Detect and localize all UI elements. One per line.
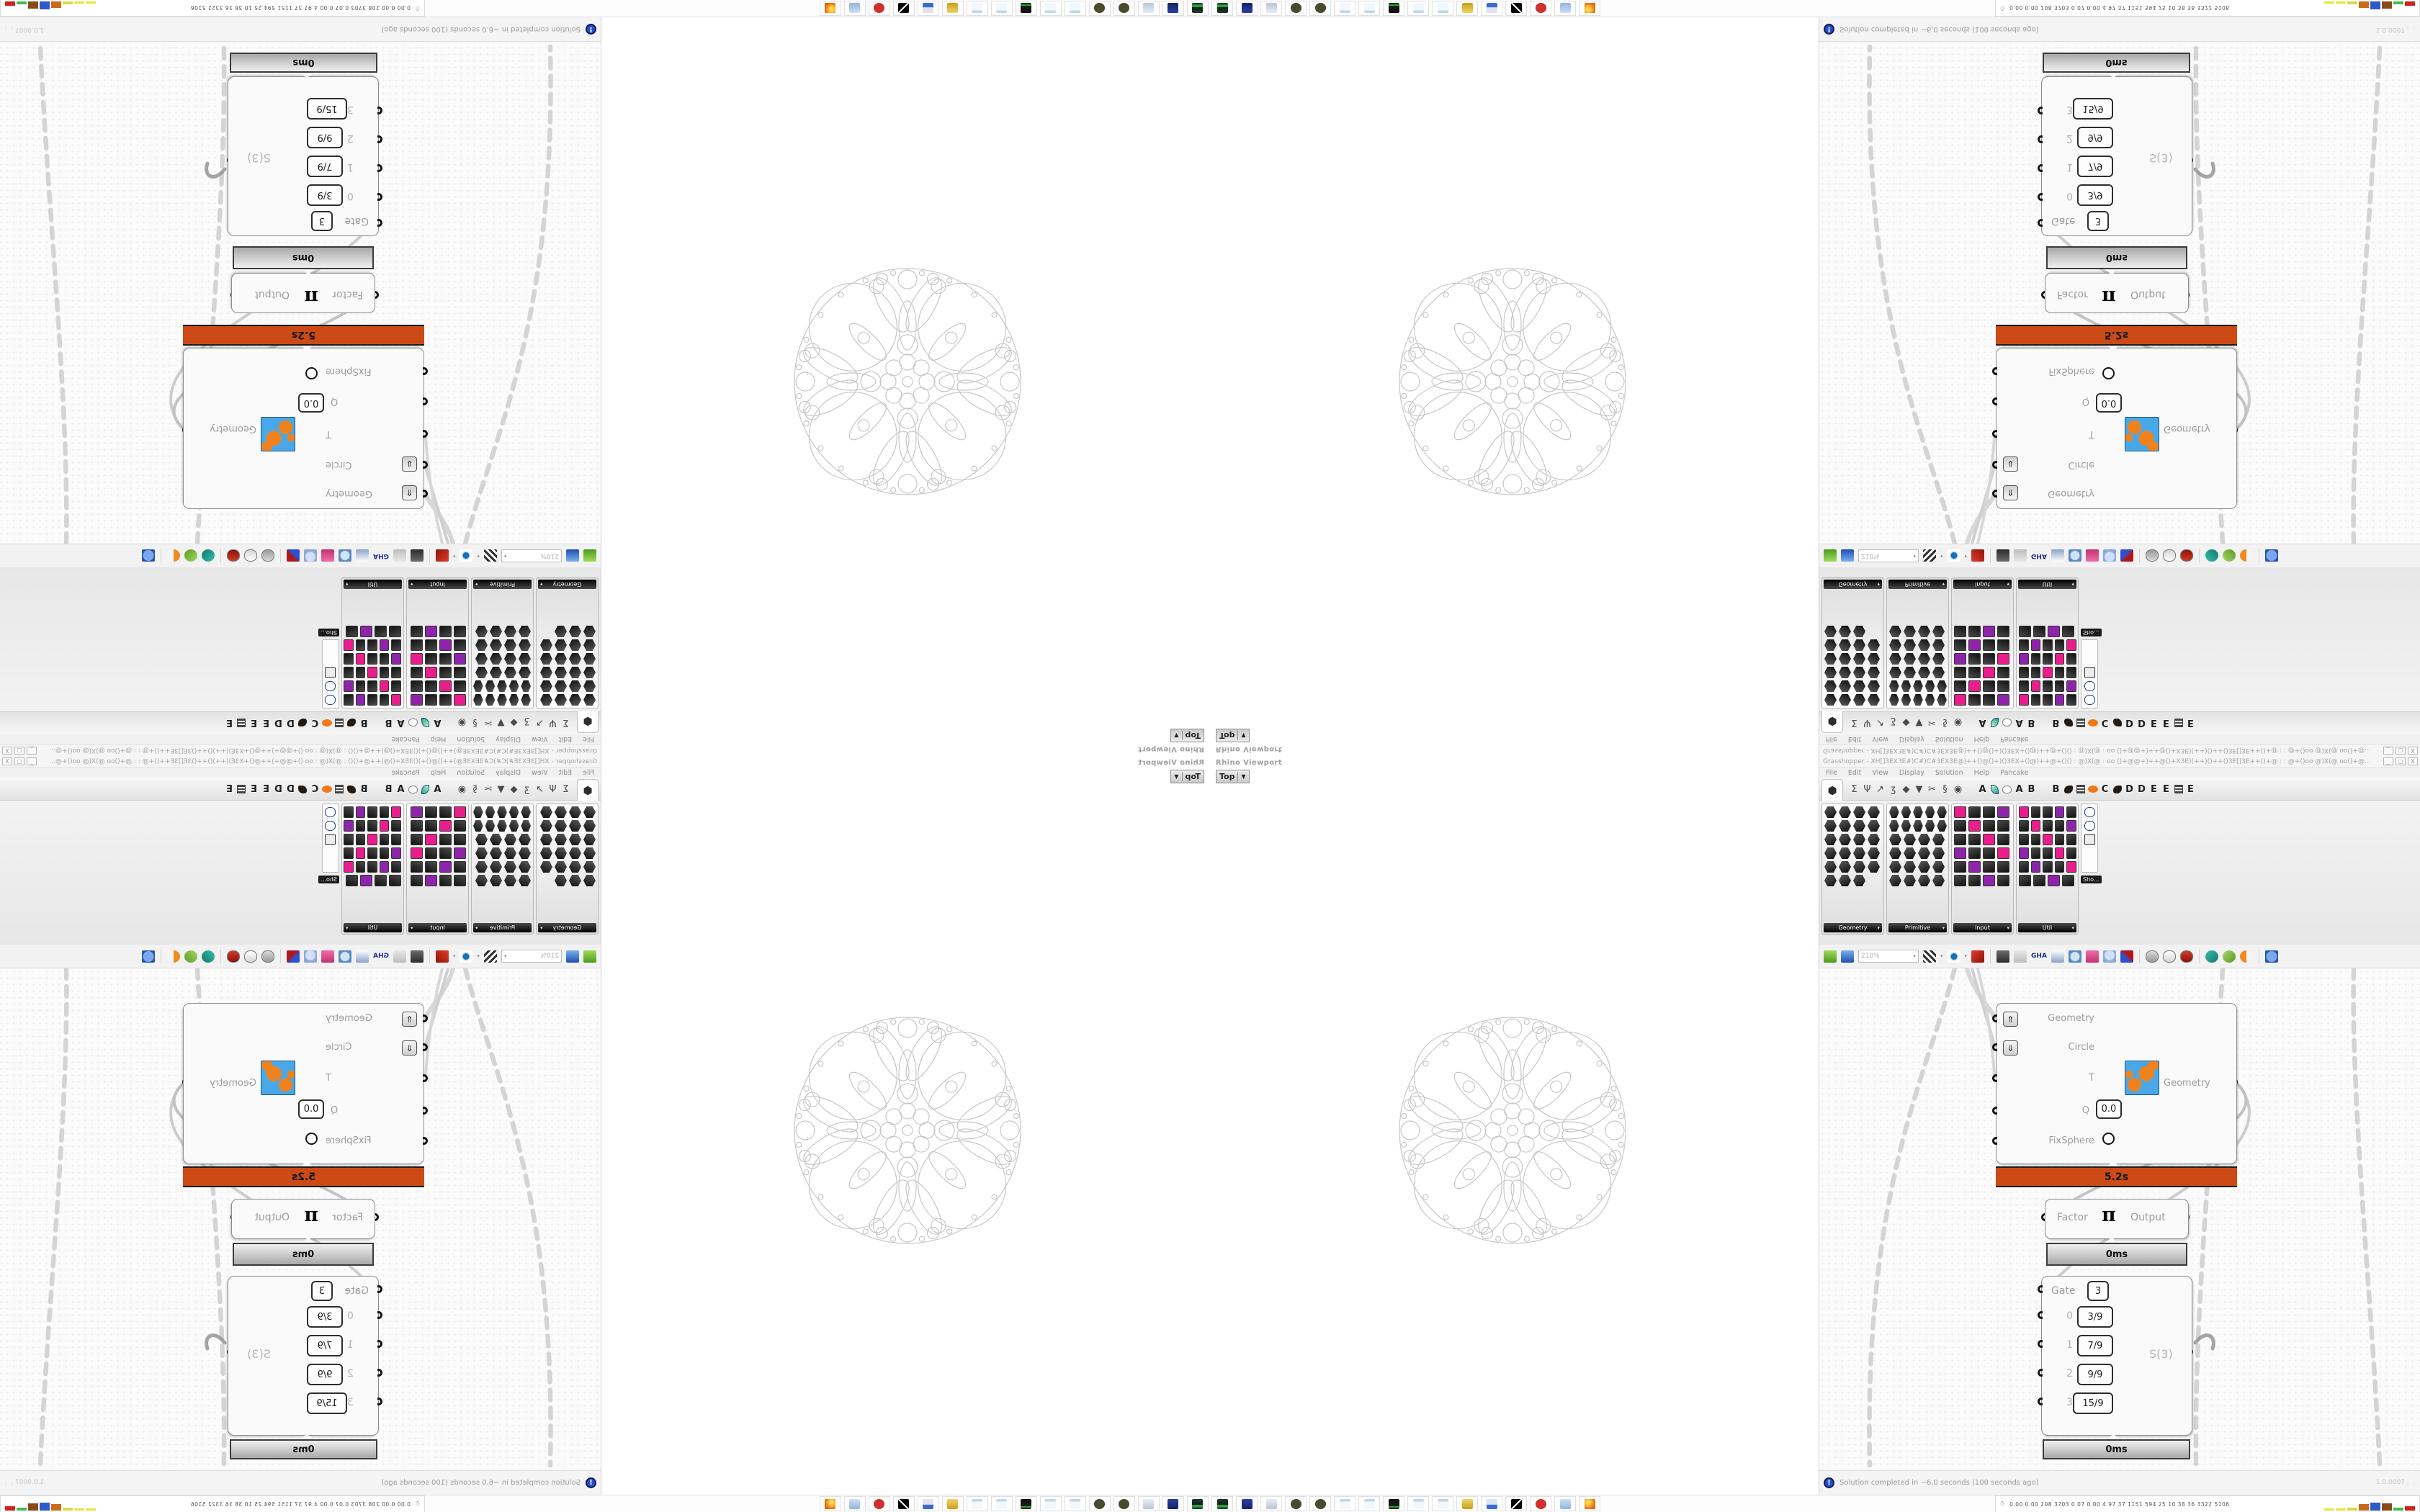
- tab-mountain-icon[interactable]: [2038, 778, 2050, 801]
- component-icon[interactable]: [411, 820, 423, 832]
- wire-display-icon[interactable]: [2120, 950, 2133, 963]
- component-icon[interactable]: [1853, 639, 1865, 651]
- search-s-icon[interactable]: [2069, 950, 2081, 963]
- tab-sets-branch[interactable]: Ψ: [547, 778, 559, 801]
- tab-transform-spiral[interactable]: §: [469, 711, 481, 734]
- menu-item-edit[interactable]: Edit: [559, 769, 572, 777]
- palette-footer-input[interactable]: Input▾: [1953, 580, 2012, 589]
- component-icon[interactable]: [1983, 806, 1995, 818]
- preview-eye-icon[interactable]: [1948, 950, 1960, 963]
- tab-vector-stroke[interactable]: ↗: [1874, 778, 1886, 801]
- tab-ellipse-icon[interactable]: [321, 778, 333, 801]
- component-icon[interactable]: [1954, 694, 1966, 706]
- component-icon[interactable]: [2031, 861, 2041, 873]
- tab-curve-hook[interactable]: ʒ: [521, 778, 533, 801]
- chevron-down-icon[interactable]: ▼: [1174, 732, 1178, 739]
- component-icon[interactable]: [1932, 639, 1945, 651]
- menu-item-help[interactable]: Help: [1974, 769, 1990, 777]
- component-icon[interactable]: [1954, 680, 1966, 692]
- component-icon[interactable]: [1932, 653, 1945, 665]
- component-icon[interactable]: [367, 667, 377, 678]
- tab-letter-E[interactable]: E: [260, 711, 272, 734]
- maximize-button[interactable]: □: [14, 757, 24, 765]
- tab-letter-A[interactable]: A: [431, 778, 444, 801]
- component-icon[interactable]: [411, 847, 423, 859]
- select-teal-icon[interactable]: [2205, 550, 2218, 562]
- component-icon[interactable]: [1997, 653, 2009, 665]
- blue-octagon-icon[interactable]: [142, 550, 155, 562]
- component-icon[interactable]: [569, 875, 581, 886]
- palette-footer-util[interactable]: Util▾: [344, 580, 402, 589]
- menu-item-help[interactable]: Help: [431, 736, 447, 744]
- component-icon[interactable]: [425, 834, 437, 845]
- component-icon[interactable]: [1824, 875, 1837, 886]
- tab-maths-sigma[interactable]: Σ: [1848, 711, 1860, 734]
- open-button-icon[interactable]: [1824, 950, 1837, 963]
- component-icon[interactable]: [519, 653, 531, 665]
- tab-letter-C[interactable]: C: [2099, 778, 2111, 801]
- component-icon[interactable]: [490, 834, 502, 845]
- tab-maths-sigma[interactable]: Σ: [560, 711, 572, 734]
- component-icon[interactable]: [583, 667, 596, 678]
- component-icon[interactable]: [1853, 834, 1865, 845]
- component-icon[interactable]: [356, 639, 366, 651]
- tab-transform-spiral[interactable]: §: [1939, 711, 1951, 734]
- component-icon[interactable]: [2055, 820, 2065, 832]
- taskbar-item-lightning[interactable]: [893, 1, 915, 16]
- component-icon[interactable]: [1889, 680, 1899, 692]
- chevron-down-icon[interactable]: ▾: [2007, 925, 2009, 931]
- component-icon[interactable]: [485, 694, 496, 706]
- taskbar-item-workstation[interactable]: [918, 1496, 939, 1511]
- taskbar-item-dark-ornament[interactable]: [1113, 1496, 1135, 1511]
- component-icon[interactable]: [1839, 847, 1851, 859]
- tab-cloud-icon[interactable]: [407, 778, 419, 801]
- component-icon[interactable]: [1968, 861, 1981, 873]
- remote-panel-icon[interactable]: [1996, 950, 2009, 963]
- tab-bird-icon[interactable]: [2111, 711, 2123, 734]
- tab-bird-icon[interactable]: [2111, 778, 2123, 801]
- tab-letter-E[interactable]: E: [260, 778, 272, 801]
- tab-letter-A[interactable]: A: [1976, 711, 1989, 734]
- palette-footer-primitive[interactable]: Primitive▾: [1888, 923, 1947, 932]
- tab-intersect-scissors[interactable]: ✂: [482, 711, 494, 734]
- component-icon[interactable]: [540, 667, 552, 678]
- zoom-extents-icon[interactable]: [484, 950, 497, 963]
- output-grip[interactable]: [2237, 423, 2242, 434]
- tab-intersect-scissors[interactable]: ✂: [482, 778, 494, 801]
- component-icon[interactable]: [569, 834, 581, 845]
- tab-transform-spiral[interactable]: §: [469, 778, 481, 801]
- component-icon[interactable]: [326, 807, 336, 817]
- window-panel-icon[interactable]: [356, 550, 369, 562]
- component-icon[interactable]: [380, 639, 390, 651]
- component-icon[interactable]: [367, 639, 377, 651]
- remote-panel-icon[interactable]: [1996, 550, 2009, 562]
- q-value-box[interactable]: 0.0: [2096, 1099, 2122, 1119]
- input-grip[interactable]: [377, 216, 382, 227]
- bulb-icon[interactable]: [304, 550, 317, 562]
- component-icon[interactable]: [2066, 834, 2076, 845]
- component-icon[interactable]: [1954, 667, 1966, 678]
- component-icon[interactable]: [326, 821, 336, 831]
- sketch-pen-icon[interactable]: [1971, 950, 1984, 963]
- tab-bird-icon[interactable]: [346, 711, 358, 734]
- component-icon[interactable]: [1839, 626, 1851, 637]
- component-icon[interactable]: [2043, 820, 2053, 832]
- component-icon[interactable]: [540, 694, 552, 706]
- component-icon[interactable]: [389, 875, 401, 886]
- chevron-down-icon[interactable]: ▾: [1965, 953, 1968, 959]
- component-icon[interactable]: [1937, 680, 1947, 692]
- component-icon[interactable]: [2031, 680, 2041, 692]
- component-icon[interactable]: [2043, 806, 2053, 818]
- blue-octagon-icon[interactable]: [2265, 950, 2278, 963]
- component-icon[interactable]: [1968, 834, 1981, 845]
- taskbar-item-notepad[interactable]: [1432, 1496, 1453, 1511]
- tab-letter-E[interactable]: E: [248, 778, 260, 801]
- component-icon[interactable]: [1983, 653, 1995, 665]
- output-grip[interactable]: [2192, 153, 2197, 164]
- component-icon[interactable]: [475, 639, 488, 651]
- at-panel-icon[interactable]: [393, 950, 406, 963]
- tab-letter-B[interactable]: B: [382, 778, 395, 801]
- preview-wireframe-icon[interactable]: [244, 550, 257, 562]
- tab-letter-E[interactable]: E: [248, 711, 260, 734]
- component-icon[interactable]: [475, 667, 488, 678]
- tab-mountain-icon[interactable]: [2038, 711, 2050, 734]
- chevron-down-icon[interactable]: ▾: [2071, 582, 2074, 588]
- gha-installer-icon[interactable]: GHA: [2031, 552, 2047, 559]
- gate-value-box[interactable]: 3: [311, 1281, 333, 1301]
- component-icon[interactable]: [367, 680, 377, 692]
- select-green-icon[interactable]: [184, 950, 197, 963]
- component-icon[interactable]: [1997, 820, 2009, 832]
- menu-item-help[interactable]: Help: [431, 769, 447, 777]
- q-value-box[interactable]: 0.0: [2096, 393, 2122, 413]
- component-icon[interactable]: [2055, 680, 2065, 692]
- component-icon[interactable]: [391, 861, 401, 873]
- component-icon[interactable]: [2084, 681, 2095, 691]
- component-icon[interactable]: [1925, 806, 1935, 818]
- chevron-down-icon[interactable]: ▾: [475, 925, 478, 931]
- component-icon[interactable]: [344, 667, 354, 678]
- taskbar-item-green-crt-device[interactable]: [1211, 1, 1233, 16]
- component-icon[interactable]: [1997, 680, 2009, 692]
- taskbar-item-workstation[interactable]: [918, 1, 939, 16]
- gh-canvas[interactable]: ⇑ ⇓ Geometry Circle T Q 0.0 FixSphere Ge…: [0, 42, 601, 544]
- component-icon[interactable]: [454, 834, 466, 845]
- output-grip[interactable]: [2189, 288, 2194, 299]
- wire-display-icon[interactable]: [287, 950, 300, 963]
- component-icon[interactable]: [2066, 861, 2076, 873]
- component-icon[interactable]: [540, 680, 552, 692]
- component-icon[interactable]: [1954, 847, 1966, 859]
- component-icon[interactable]: [439, 653, 452, 665]
- tab-bird-icon[interactable]: [2062, 711, 2074, 734]
- component-icon[interactable]: [380, 834, 390, 845]
- component-icon[interactable]: [2031, 694, 2041, 706]
- output-grip[interactable]: [178, 1078, 183, 1089]
- component-icon[interactable]: [1983, 667, 1995, 678]
- component-icon[interactable]: [1932, 626, 1945, 637]
- component-icon[interactable]: [490, 626, 502, 637]
- component-icon[interactable]: [2043, 667, 2053, 678]
- component-icon[interactable]: [1853, 875, 1865, 886]
- taskbar-item-dark-ornament[interactable]: [1113, 1, 1135, 16]
- component-icon[interactable]: [504, 847, 516, 859]
- package-box-icon[interactable]: [2086, 550, 2099, 562]
- menu-item-display[interactable]: Display: [1899, 769, 1924, 777]
- component-icon[interactable]: [475, 847, 488, 859]
- component-icon[interactable]: [1839, 680, 1851, 692]
- save-button-icon[interactable]: [1841, 950, 1854, 963]
- component-icon[interactable]: [391, 639, 401, 651]
- component-icon[interactable]: [454, 694, 466, 706]
- component-icon[interactable]: [1932, 667, 1945, 678]
- component-icon[interactable]: [569, 694, 581, 706]
- input-grip[interactable]: [2038, 216, 2043, 227]
- component-icon[interactable]: [391, 680, 401, 692]
- chevron-down-icon[interactable]: ▾: [1942, 925, 1945, 931]
- component-icon[interactable]: [439, 806, 452, 818]
- taskbar-item-notepad[interactable]: [1407, 1, 1429, 16]
- tab-letter-A[interactable]: A: [2013, 711, 2025, 734]
- tab-grid-icon[interactable]: [236, 778, 248, 801]
- tab-letter-E[interactable]: E: [2148, 778, 2160, 801]
- component-icon[interactable]: [326, 681, 336, 691]
- tab-surface-patch[interactable]: ◆: [1900, 711, 1912, 734]
- component-icon[interactable]: [509, 806, 519, 818]
- component-icon[interactable]: [1889, 639, 1901, 651]
- component-icon[interactable]: [1868, 639, 1880, 651]
- component-icon[interactable]: [425, 694, 437, 706]
- component-icon[interactable]: [344, 806, 354, 818]
- component-icon[interactable]: [555, 694, 567, 706]
- tab-cloud-icon[interactable]: [2001, 711, 2013, 734]
- component-icon[interactable]: [1868, 806, 1880, 818]
- component-icon[interactable]: [1853, 694, 1865, 706]
- minimize-button[interactable]: _: [27, 747, 37, 755]
- tab-letter-D[interactable]: D: [284, 711, 297, 734]
- component-icon[interactable]: [583, 639, 596, 651]
- component-icon[interactable]: [540, 847, 552, 859]
- tab-leaf-icon[interactable]: [419, 711, 431, 734]
- component-icon[interactable]: [1904, 653, 1916, 665]
- component-icon[interactable]: [1997, 847, 2009, 859]
- resize-grip[interactable]: ⋮⋮: [2405, 24, 2418, 31]
- component-icon[interactable]: [1868, 861, 1880, 873]
- component-icon[interactable]: [411, 626, 423, 637]
- component-icon[interactable]: [425, 680, 437, 692]
- component-icon[interactable]: [1968, 820, 1981, 832]
- component-icon[interactable]: [375, 626, 387, 637]
- palette-footer-input[interactable]: Input▾: [408, 580, 467, 589]
- chevron-down-icon[interactable]: ▾: [1965, 553, 1968, 559]
- component-icon[interactable]: [569, 847, 581, 859]
- component-icon[interactable]: [391, 694, 401, 706]
- taskbar-item-dark-ornament[interactable]: [1285, 1496, 1307, 1511]
- output-grip[interactable]: [178, 423, 183, 434]
- component-icon[interactable]: [380, 694, 390, 706]
- taskbar-item-notepad[interactable]: [991, 1496, 1013, 1511]
- taskbar-item-scroll-document[interactable]: [1138, 1, 1160, 16]
- tab-grid-icon[interactable]: [2074, 778, 2087, 801]
- component-icon[interactable]: [1918, 834, 1930, 845]
- preview-eye-icon[interactable]: [460, 550, 472, 562]
- component-icon[interactable]: [2066, 667, 2076, 678]
- menu-item-pancake[interactable]: Pancake: [392, 769, 420, 777]
- open-button-icon[interactable]: [583, 950, 596, 963]
- taskbar-item-notepad[interactable]: [1358, 1496, 1380, 1511]
- component-icon[interactable]: [1868, 847, 1880, 859]
- component-icon[interactable]: [2019, 875, 2031, 886]
- tab-mesh-funnel[interactable]: ▼: [495, 711, 507, 734]
- chevron-down-icon[interactable]: ▾: [411, 925, 413, 931]
- component-icon[interactable]: [540, 806, 552, 818]
- component-icon[interactable]: [569, 667, 581, 678]
- component-icon[interactable]: [1997, 806, 2009, 818]
- stream-0-value-box[interactable]: 3/9: [2077, 184, 2113, 206]
- component-icon[interactable]: [1889, 653, 1901, 665]
- component-icon[interactable]: [346, 626, 358, 637]
- component-icon[interactable]: [519, 847, 531, 859]
- tab-letter-D[interactable]: D: [2136, 711, 2148, 734]
- component-icon[interactable]: [504, 875, 516, 886]
- component-icon[interactable]: [2019, 847, 2029, 859]
- palette-footer-input[interactable]: Input▾: [1953, 923, 2012, 932]
- menu-item-solution[interactable]: Solution: [457, 769, 485, 777]
- taskbar-item-scroll-document[interactable]: [1260, 1496, 1282, 1511]
- taskbar-item-folder[interactable]: [1456, 1, 1478, 16]
- tab-ellipse-icon[interactable]: [321, 711, 333, 734]
- taskbar-item-notepad[interactable]: [1334, 1496, 1355, 1511]
- component-icon[interactable]: [1968, 806, 1981, 818]
- tab-grid-icon[interactable]: [2172, 778, 2184, 801]
- component-icon[interactable]: [356, 861, 366, 873]
- component-icon[interactable]: [1968, 653, 1981, 665]
- component-icon[interactable]: [555, 680, 567, 692]
- taskbar-item-notepad[interactable]: [1065, 1, 1086, 16]
- output-grip[interactable]: [223, 153, 228, 164]
- stream-2-value-box[interactable]: 9/9: [307, 127, 343, 148]
- component-icon[interactable]: [504, 653, 516, 665]
- component-icon[interactable]: [521, 820, 531, 832]
- component-icon[interactable]: [475, 861, 488, 873]
- component-icon[interactable]: [2031, 847, 2041, 859]
- sketch-pen-icon[interactable]: [1971, 550, 1984, 562]
- component-icon[interactable]: [519, 626, 531, 637]
- tab-display-eye[interactable]: ◉: [456, 711, 468, 734]
- component-icon[interactable]: [1983, 875, 1995, 886]
- component-icon[interactable]: [356, 847, 366, 859]
- remote-panel-icon[interactable]: [411, 950, 423, 963]
- component-icon[interactable]: [344, 694, 354, 706]
- gh-canvas[interactable]: ⇑ ⇓ Geometry Circle T Q 0.0 FixSphere Ge…: [0, 968, 601, 1470]
- component-icon[interactable]: [569, 680, 581, 692]
- zoom-level-box[interactable]: 210%▾: [501, 549, 562, 562]
- component-icon[interactable]: [367, 820, 377, 832]
- component-icon[interactable]: [569, 626, 581, 637]
- minimize-button[interactable]: _: [27, 757, 37, 765]
- taskbar-item-floppy-64[interactable]: [1162, 1496, 1184, 1511]
- component-icon[interactable]: [425, 653, 437, 665]
- tab-letter-B[interactable]: B: [358, 778, 370, 801]
- component-icon[interactable]: [509, 820, 519, 832]
- component-icon[interactable]: [475, 653, 488, 665]
- blue-octagon-icon[interactable]: [142, 950, 155, 963]
- component-icon[interactable]: [1925, 694, 1935, 706]
- tab-display-eye[interactable]: ◉: [1952, 778, 1964, 801]
- preview-shaded-icon[interactable]: [227, 950, 240, 963]
- taskbar-item-green-crt-device[interactable]: [1187, 1496, 1209, 1511]
- component-icon[interactable]: [473, 694, 483, 706]
- component-icon[interactable]: [1968, 667, 1981, 678]
- component-icon[interactable]: [1839, 639, 1851, 651]
- stream-3-value-box[interactable]: 15/9: [2073, 98, 2113, 120]
- component-icon[interactable]: [2048, 875, 2060, 886]
- component-icon[interactable]: [521, 806, 531, 818]
- component-icon[interactable]: [380, 820, 390, 832]
- component-icon[interactable]: [2019, 861, 2029, 873]
- menu-item-file[interactable]: File: [1826, 736, 1837, 744]
- component-icon[interactable]: [326, 667, 336, 678]
- palette-footer-geometry[interactable]: Geometry▾: [538, 580, 596, 589]
- component-icon[interactable]: [555, 626, 567, 637]
- maximize-button[interactable]: □: [14, 747, 24, 755]
- component-icon[interactable]: [411, 834, 423, 845]
- component-icon[interactable]: [1868, 694, 1880, 706]
- stream-1-value-box[interactable]: 7/9: [2077, 1335, 2113, 1356]
- component-icon[interactable]: [1824, 626, 1837, 637]
- component-icon[interactable]: [583, 680, 596, 692]
- component-icon[interactable]: [1853, 847, 1865, 859]
- taskbar-item-notepad[interactable]: [1040, 1, 1062, 16]
- component-icon[interactable]: [2066, 694, 2076, 706]
- taskbar-item-scroll-document[interactable]: [1260, 1, 1282, 16]
- gha-installer-icon[interactable]: GHA: [373, 552, 389, 559]
- preview-eye-icon[interactable]: [1948, 550, 1960, 562]
- tab-letter-E[interactable]: E: [2160, 711, 2172, 734]
- component-icon[interactable]: [540, 861, 552, 873]
- menu-item-view[interactable]: View: [1872, 736, 1888, 744]
- component-icon[interactable]: [367, 694, 377, 706]
- component-icon[interactable]: [1937, 806, 1947, 818]
- palette-footer-geometry[interactable]: Geometry▾: [538, 923, 596, 932]
- tab-display-eye[interactable]: ◉: [1952, 711, 1964, 734]
- component-icon[interactable]: [2019, 834, 2029, 845]
- menu-item-help[interactable]: Help: [1974, 736, 1990, 744]
- component-icon[interactable]: [583, 626, 596, 637]
- palette-footer-primitive[interactable]: Primitive▾: [1888, 580, 1947, 589]
- component-icon[interactable]: [1824, 653, 1837, 665]
- component-icon[interactable]: [569, 820, 581, 832]
- component-icon[interactable]: [1889, 847, 1901, 859]
- tab-letter-C[interactable]: C: [2099, 711, 2111, 734]
- taskbar-item-dark-ornament[interactable]: [1285, 1, 1307, 16]
- component-icon[interactable]: [1853, 653, 1865, 665]
- component-icon[interactable]: [1904, 639, 1916, 651]
- component-icon[interactable]: [439, 639, 452, 651]
- select-half-icon[interactable]: [2240, 550, 2253, 562]
- component-icon[interactable]: [555, 653, 567, 665]
- menu-item-edit[interactable]: Edit: [1848, 769, 1861, 777]
- tab-params-selected[interactable]: ⬢: [577, 711, 599, 733]
- component-icon[interactable]: [391, 653, 401, 665]
- component-icon[interactable]: [411, 653, 423, 665]
- tab-letter-B[interactable]: B: [2050, 778, 2062, 801]
- component-icon[interactable]: [1997, 861, 2009, 873]
